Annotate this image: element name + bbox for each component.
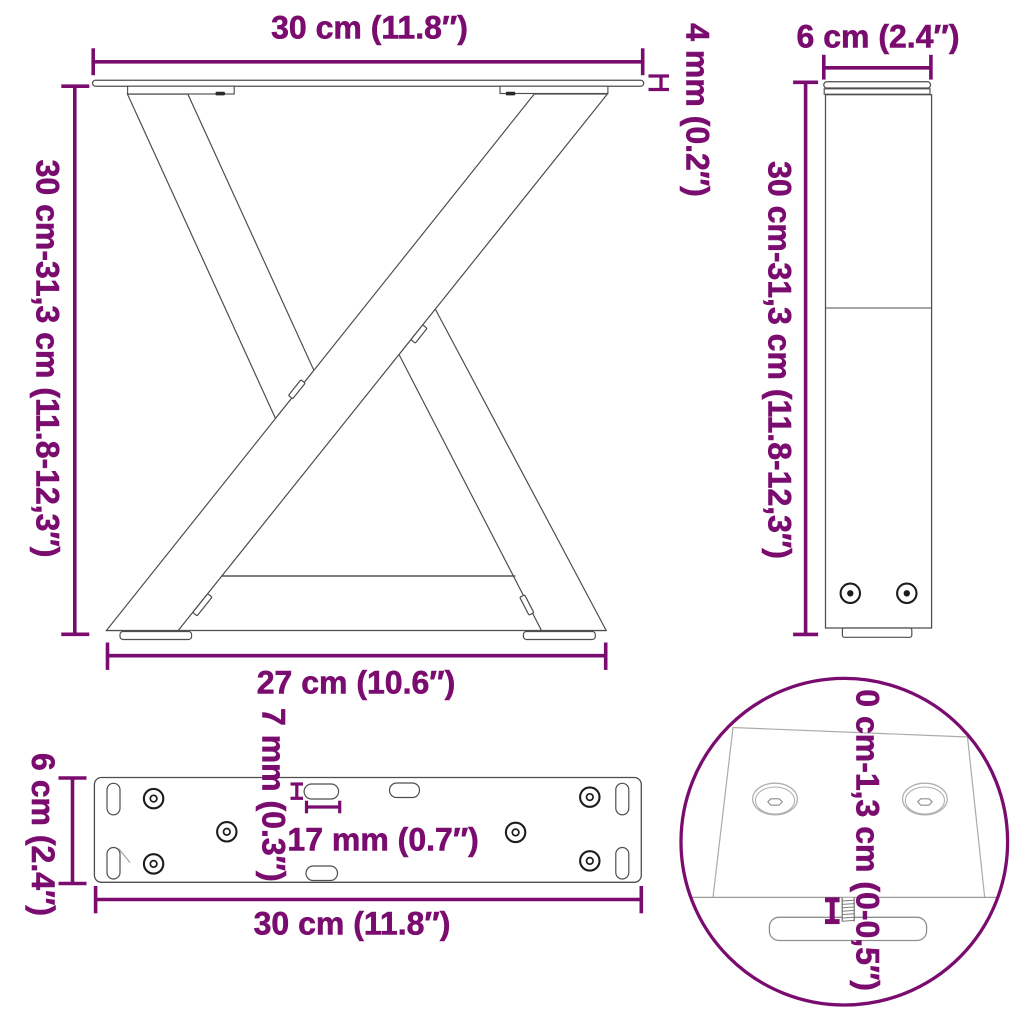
svg-text:17 mm (0.7″): 17 mm (0.7″) xyxy=(287,822,478,858)
svg-text:7 mm (0.3″): 7 mm (0.3″) xyxy=(256,708,292,882)
svg-text:30 cm-31,3 cm (11.8-12,3″): 30 cm-31,3 cm (11.8-12,3″) xyxy=(30,160,66,558)
svg-text:30 cm (11.8″): 30 cm (11.8″) xyxy=(254,906,451,942)
svg-text:4 mm (0.2″): 4 mm (0.2″) xyxy=(679,23,715,197)
svg-text:0 cm-1,3 cm (0-0,5″): 0 cm-1,3 cm (0-0,5″) xyxy=(849,689,885,991)
svg-text:6 cm (2.4″): 6 cm (2.4″) xyxy=(25,753,61,916)
svg-text:30 cm-31,3 cm (11.8-12,3″): 30 cm-31,3 cm (11.8-12,3″) xyxy=(762,161,798,559)
svg-text:30 cm (11.8″): 30 cm (11.8″) xyxy=(271,10,468,46)
svg-text:27 cm (10.6″): 27 cm (10.6″) xyxy=(257,664,456,700)
svg-text:6 cm (2.4″): 6 cm (2.4″) xyxy=(797,19,960,55)
